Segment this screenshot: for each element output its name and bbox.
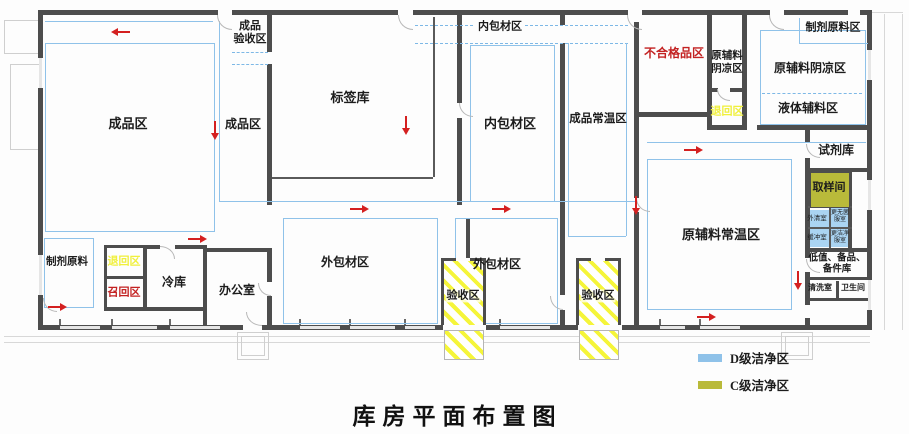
room-outer-packaging-left: 外包材区 bbox=[321, 255, 369, 269]
clean-zone-dashed bbox=[762, 93, 862, 94]
wall-segment bbox=[805, 318, 810, 325]
flow-arrow-icon bbox=[635, 196, 637, 208]
wall-segment bbox=[232, 10, 398, 15]
clean-zone-dashed bbox=[232, 64, 268, 65]
door-arc bbox=[459, 103, 473, 117]
window-segment bbox=[39, 255, 42, 295]
wall-segment bbox=[38, 88, 43, 255]
window-segment bbox=[405, 326, 435, 329]
window-segment bbox=[700, 326, 740, 329]
wall-segment bbox=[267, 296, 272, 325]
room-finished-goods-main: 成品区 bbox=[108, 116, 147, 132]
clean-zone-boundary bbox=[219, 21, 220, 202]
flow-arrow-icon bbox=[492, 208, 504, 210]
clean-zone-boundary bbox=[283, 218, 438, 324]
room-acceptance-right: 验收区 bbox=[581, 289, 616, 302]
wall-segment bbox=[730, 88, 747, 92]
clean-zone-dashed bbox=[232, 52, 268, 53]
room-reagent-warehouse: 试剂库 bbox=[818, 143, 854, 157]
stairs-outline bbox=[241, 336, 265, 356]
wall-segment bbox=[618, 258, 621, 325]
room-return-upper: 退回区 bbox=[711, 105, 744, 118]
clean-zone-boundary bbox=[568, 43, 569, 236]
window-segment bbox=[868, 280, 871, 310]
room-finished-goods-ambient: 成品常温区 bbox=[569, 113, 627, 127]
flow-arrow-icon bbox=[118, 31, 130, 33]
wall-segment bbox=[634, 22, 639, 198]
thin-wall bbox=[433, 17, 435, 177]
wall-segment bbox=[560, 15, 565, 25]
dock-tongue-hatch bbox=[579, 330, 619, 360]
column-tick bbox=[59, 319, 61, 325]
flow-arrow-icon bbox=[697, 316, 709, 318]
window-segment bbox=[660, 326, 685, 329]
room-prep-raw-material-area: 制剂原料区 bbox=[806, 21, 861, 34]
room-prep-raw-material: 制剂原料 bbox=[46, 257, 88, 270]
window-segment bbox=[868, 180, 871, 210]
room-gowning-upper: 更无菌 服室 bbox=[831, 210, 849, 224]
legend: D级洁净区 C级洁净区 bbox=[698, 348, 789, 402]
clean-zone-boundary bbox=[626, 43, 627, 236]
room-raw-aux-cool-large: 原辅料阴凉区 bbox=[774, 61, 846, 75]
flow-arrow-icon bbox=[684, 149, 696, 151]
room-cold-storage: 冷库 bbox=[162, 275, 186, 289]
legend-row-c: C级洁净区 bbox=[698, 375, 789, 394]
column-tick bbox=[111, 319, 113, 325]
wall-segment bbox=[805, 298, 868, 301]
legend-label-c-class: C级洁净区 bbox=[730, 375, 789, 394]
wall-segment bbox=[38, 10, 43, 58]
room-outer-packaging-right: 外包材区 bbox=[473, 257, 521, 271]
column-tick bbox=[169, 319, 171, 325]
wall-segment bbox=[457, 118, 462, 205]
wall-segment bbox=[605, 258, 621, 261]
wall-segment bbox=[576, 258, 579, 325]
wall-segment bbox=[560, 310, 565, 325]
wall-segment bbox=[104, 307, 207, 311]
legend-label-d-class: D级洁净区 bbox=[730, 348, 789, 367]
room-office: 办公室 bbox=[219, 283, 255, 297]
flow-arrow-icon bbox=[797, 271, 799, 283]
room-finished-goods-acceptance: 成品 验收区 bbox=[234, 20, 267, 46]
window-segment bbox=[39, 58, 42, 88]
wall-segment bbox=[642, 10, 770, 15]
clean-zone-dashed bbox=[415, 43, 628, 44]
wall-segment bbox=[867, 210, 872, 280]
room-liquid-excipient: 液体辅料区 bbox=[778, 101, 838, 115]
wall-segment bbox=[104, 276, 146, 279]
window-segment bbox=[170, 326, 220, 329]
wall-segment bbox=[784, 10, 848, 15]
wall-segment bbox=[560, 205, 565, 295]
wall-segment bbox=[560, 43, 565, 205]
window-segment bbox=[112, 326, 157, 329]
column-tick bbox=[659, 319, 661, 325]
room-sampling: 取样间 bbox=[813, 181, 846, 194]
clean-zone-boundary bbox=[45, 43, 215, 232]
wall-segment bbox=[143, 245, 160, 249]
door-arc bbox=[717, 89, 730, 101]
legend-row-d: D级洁净区 bbox=[698, 348, 789, 367]
wall-segment bbox=[634, 212, 639, 325]
room-toilet: 卫生间 bbox=[841, 283, 865, 293]
wall-segment bbox=[867, 10, 872, 50]
clean-zone-boundary bbox=[568, 236, 626, 237]
wall-segment bbox=[576, 258, 591, 261]
wall-segment bbox=[104, 245, 146, 248]
door-arc bbox=[769, 15, 784, 30]
room-recall: 召回区 bbox=[108, 286, 141, 299]
window-segment bbox=[60, 326, 100, 329]
room-washing: 清洗室 bbox=[808, 283, 832, 293]
room-low-value-spares: 低值、备品、 备件库 bbox=[808, 254, 865, 277]
room-finished-goods-narrow: 成品区 bbox=[225, 117, 261, 131]
flow-arrow-icon bbox=[48, 306, 60, 308]
wall-segment bbox=[175, 245, 207, 249]
flow-arrow-icon bbox=[405, 116, 407, 128]
wall-segment bbox=[457, 15, 462, 103]
exterior-edge-line bbox=[902, 14, 903, 330]
wall-segment bbox=[634, 112, 712, 117]
wall-segment bbox=[707, 125, 747, 130]
room-buffer: 缓冲室 bbox=[807, 234, 827, 242]
wall-segment bbox=[203, 245, 207, 325]
clean-zone-boundary bbox=[219, 201, 635, 202]
exterior-edge-line bbox=[884, 14, 885, 330]
wall-segment bbox=[413, 10, 628, 15]
wall-segment bbox=[805, 277, 868, 280]
window-segment bbox=[868, 50, 871, 80]
thin-wall bbox=[272, 177, 433, 179]
wall-segment bbox=[441, 258, 444, 325]
wall-segment bbox=[267, 15, 272, 52]
loading-dock-outline bbox=[4, 20, 42, 54]
door-arc bbox=[246, 312, 262, 326]
flow-arrow-icon bbox=[214, 121, 216, 133]
flow-arrow-icon bbox=[188, 238, 200, 240]
door-arc bbox=[43, 298, 57, 312]
room-inner-packaging: 内包材区 bbox=[484, 116, 536, 132]
dock-tongue-hatch bbox=[444, 330, 484, 360]
window-segment bbox=[350, 326, 395, 329]
wall-segment bbox=[867, 80, 872, 180]
wall-segment bbox=[441, 258, 456, 261]
door-arc bbox=[627, 15, 642, 30]
drawing-title: 库房平面布置图 bbox=[341, 397, 569, 434]
room-outer-cleaning: 外清室 bbox=[807, 215, 827, 223]
apron-line bbox=[4, 342, 870, 343]
window-segment bbox=[300, 326, 340, 329]
window-segment bbox=[500, 326, 550, 329]
room-return-lower: 退回区 bbox=[108, 255, 141, 268]
wall-segment bbox=[267, 64, 272, 205]
wall-segment bbox=[805, 130, 810, 142]
door-arc bbox=[160, 246, 175, 259]
room-label-warehouse: 标签库 bbox=[330, 90, 369, 106]
room-gowning-lower: 更洁净 服室 bbox=[831, 231, 849, 245]
door-arc bbox=[258, 283, 271, 296]
room-acceptance-left: 验收区 bbox=[446, 289, 481, 302]
column-tick bbox=[699, 319, 701, 325]
flow-arrow-icon bbox=[350, 208, 362, 210]
wall-segment bbox=[38, 10, 218, 15]
floor-plan: 成品区 成品 验收区 成品区 标签库 内包材区 内包材区 成品常温区 不合格品区… bbox=[0, 0, 909, 434]
clean-zone-boundary bbox=[45, 21, 213, 22]
room-inner-packaging-corridor: 内包材区 bbox=[475, 20, 525, 33]
wall-segment bbox=[757, 125, 868, 130]
wall-segment bbox=[836, 281, 839, 299]
legend-swatch-c-class bbox=[698, 381, 722, 389]
apron-line bbox=[4, 336, 870, 337]
wall-segment bbox=[203, 248, 271, 252]
wall-segment bbox=[267, 248, 272, 282]
room-nonconforming: 不合格品区 bbox=[644, 46, 704, 60]
exterior-edge-line bbox=[872, 12, 903, 13]
room-raw-aux-cool-small: 原辅料 阴凉区 bbox=[711, 50, 743, 75]
room-raw-aux-ambient: 原辅料常温区 bbox=[682, 227, 760, 243]
legend-swatch-d-class bbox=[698, 354, 722, 362]
door-arc bbox=[398, 15, 413, 30]
wall-segment bbox=[805, 248, 868, 252]
